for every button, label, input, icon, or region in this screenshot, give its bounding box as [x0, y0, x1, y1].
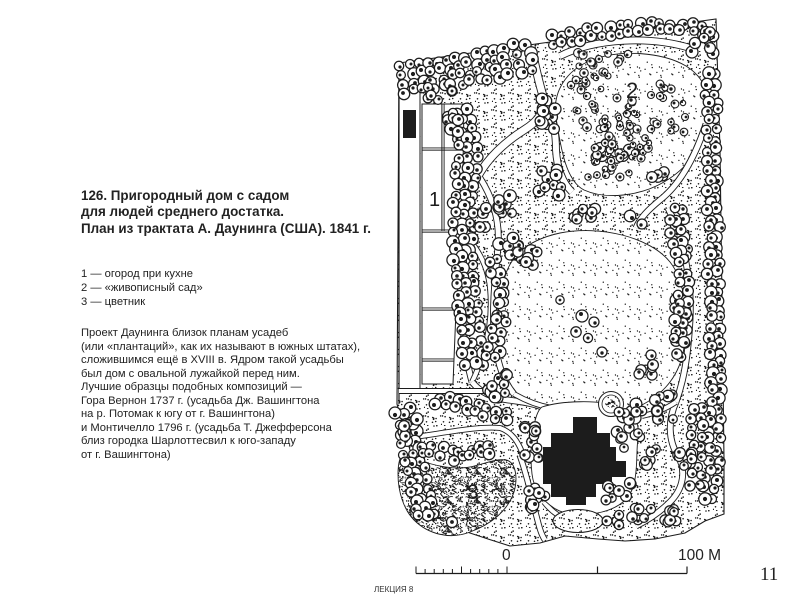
- svg-text:3: 3: [467, 481, 479, 504]
- svg-text:2: 2: [626, 78, 638, 103]
- svg-text:1: 1: [429, 189, 440, 211]
